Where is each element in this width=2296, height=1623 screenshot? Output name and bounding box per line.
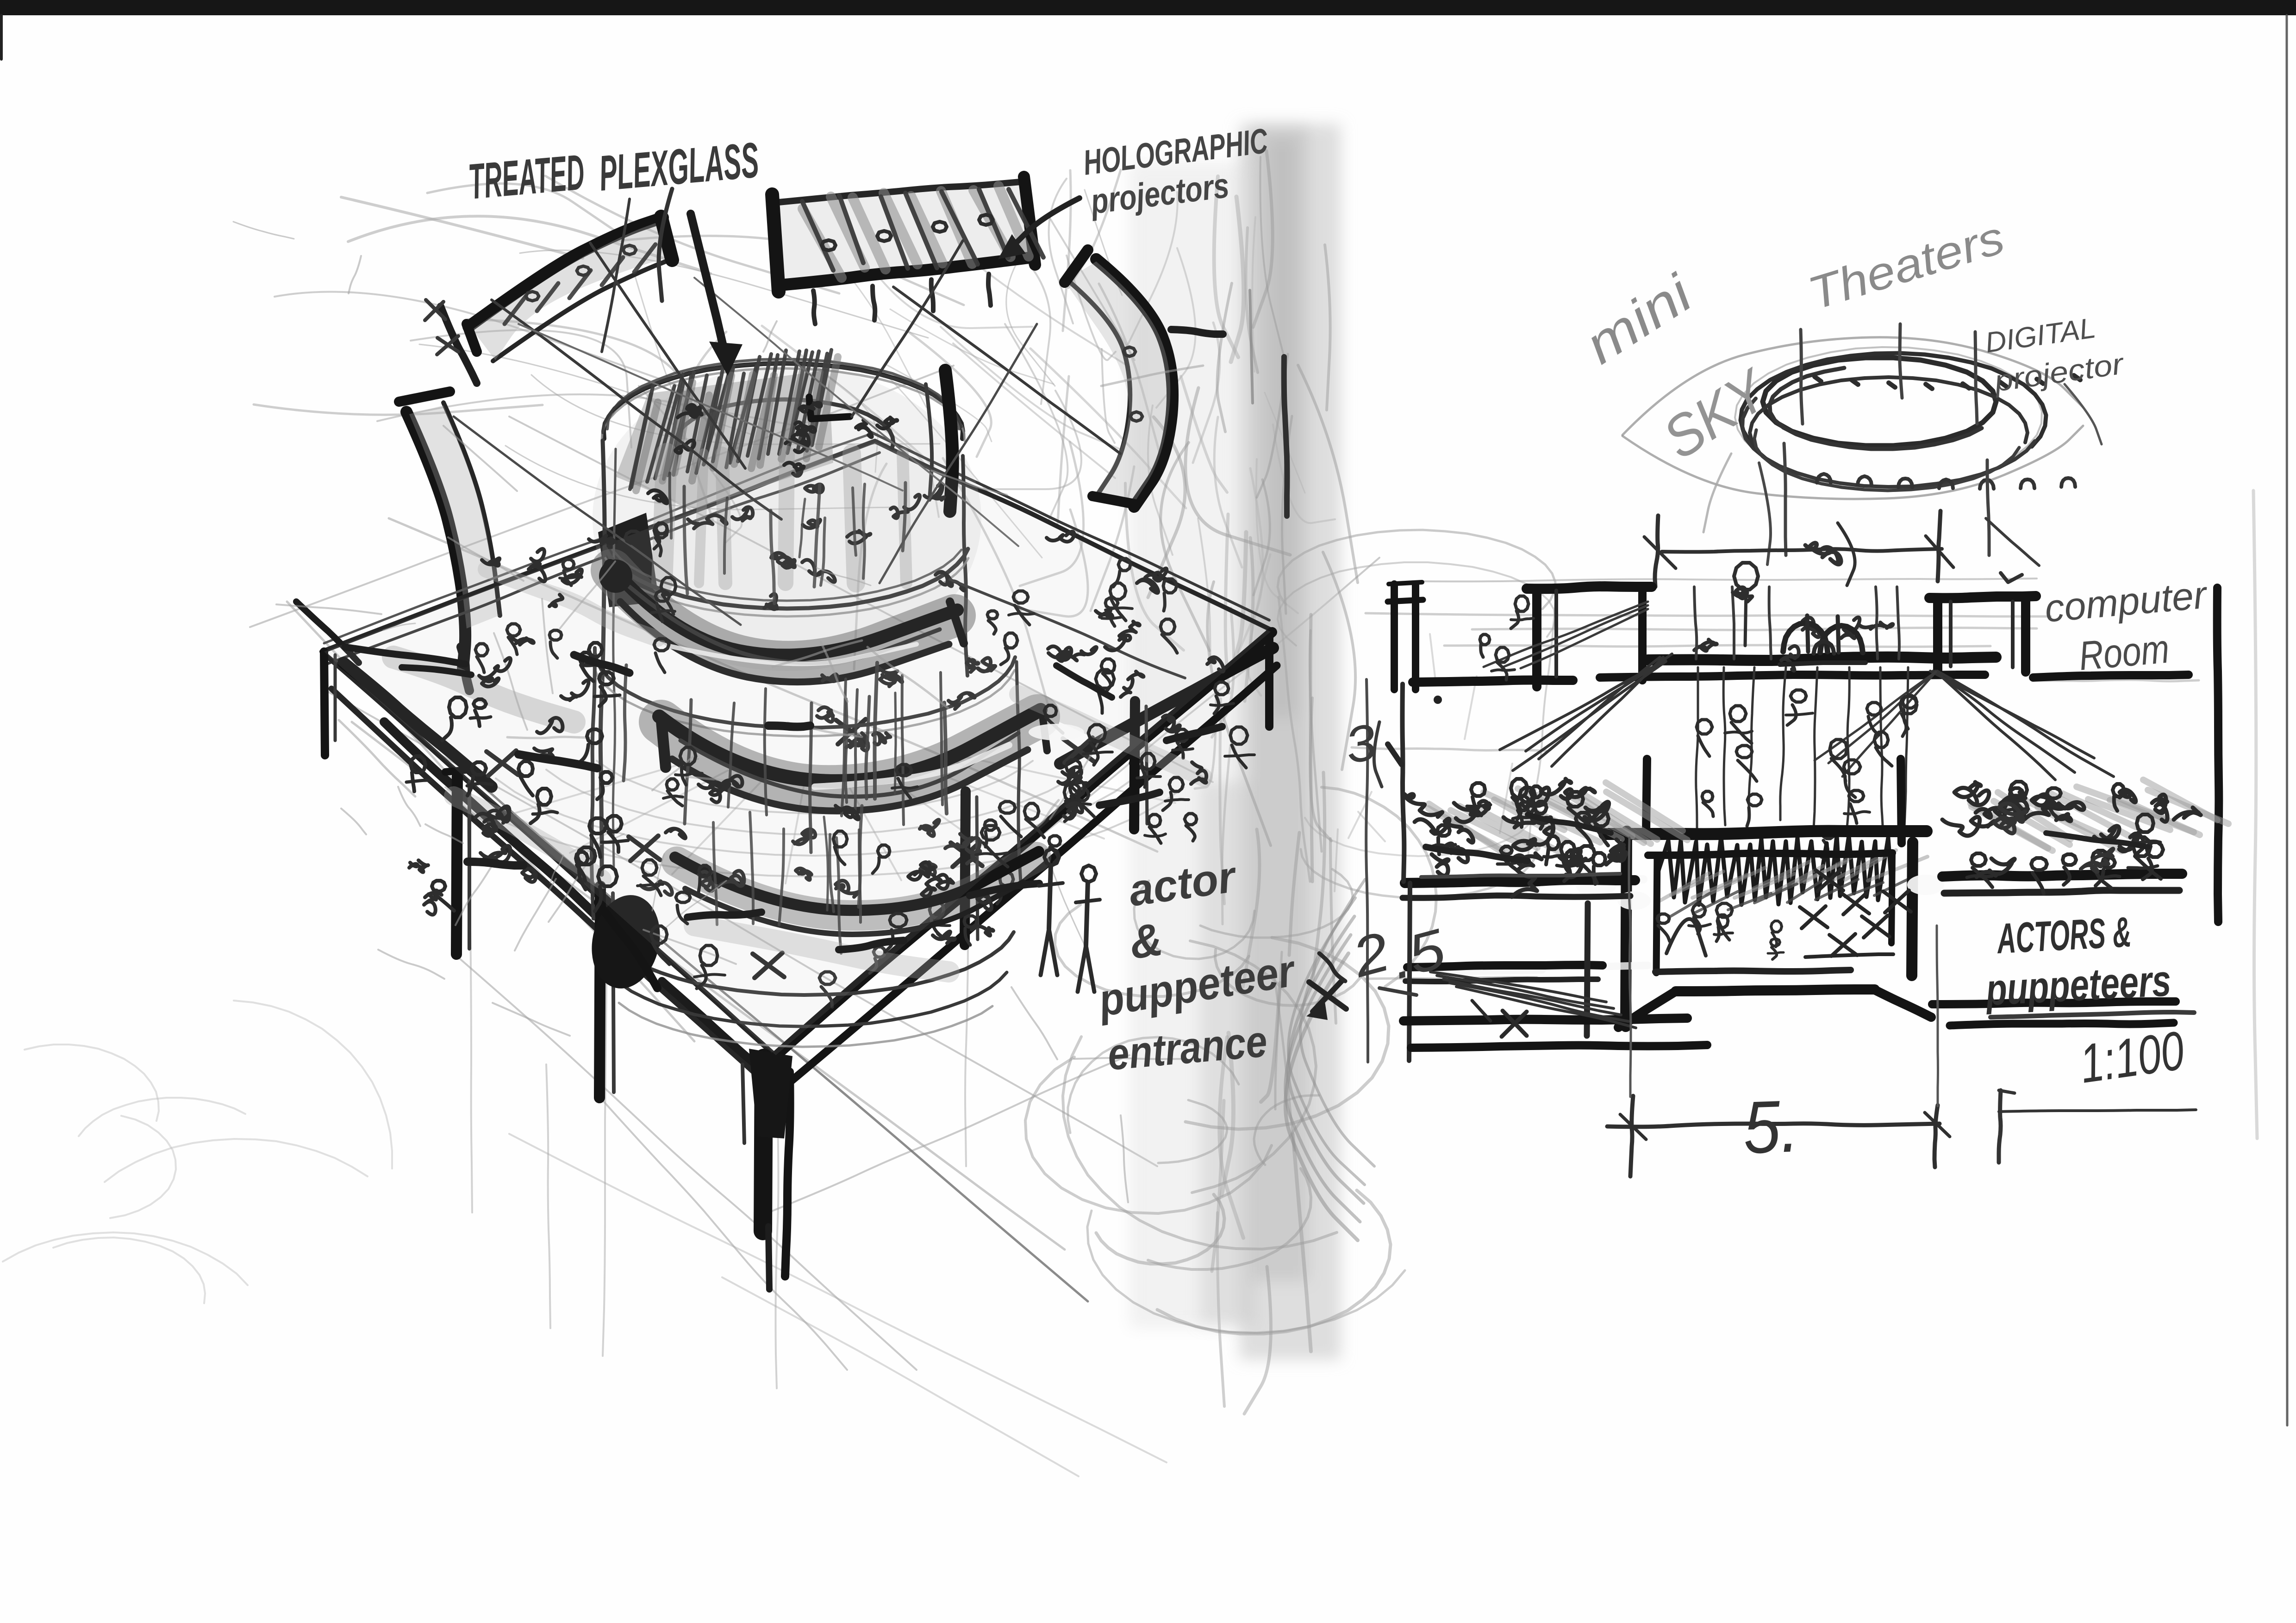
svg-text:Room: Room [2077, 625, 2171, 679]
svg-text:ACTORS &: ACTORS & [1995, 908, 2132, 963]
svg-text:puppeteers: puppeteers [1984, 956, 2172, 1015]
svg-text:TREATED: TREATED [466, 144, 586, 210]
svg-text:5.: 5. [1742, 1084, 1800, 1169]
